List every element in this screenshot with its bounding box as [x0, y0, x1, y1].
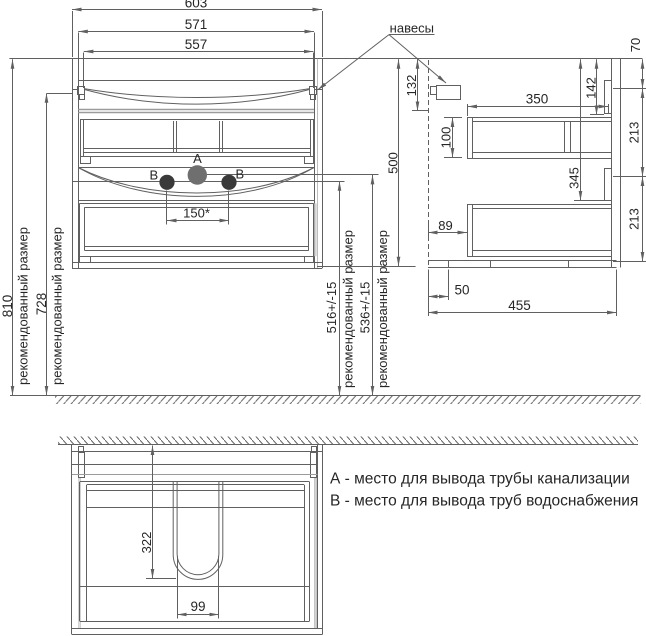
svg-text:571: 571	[185, 17, 208, 32]
svg-text:557: 557	[185, 37, 208, 52]
svg-text:А - место для вывода трубы кан: А - место для вывода трубы канализации	[330, 471, 630, 488]
svg-text:рекомендованный размер: рекомендованный размер	[375, 230, 390, 388]
svg-text:В - место для вывода труб водо: В - место для вывода труб водоснабжения	[330, 492, 638, 509]
svg-text:89: 89	[438, 218, 452, 233]
svg-text:A: A	[193, 151, 202, 166]
svg-text:100: 100	[439, 127, 454, 149]
svg-text:рекомендованный размер: рекомендованный размер	[49, 227, 64, 385]
svg-text:99: 99	[190, 599, 205, 614]
svg-text:536+/-15: 536+/-15	[357, 282, 372, 334]
svg-text:728: 728	[34, 293, 49, 316]
svg-text:навесы: навесы	[390, 21, 434, 36]
svg-text:603: 603	[185, 0, 208, 11]
svg-text:142: 142	[584, 77, 599, 99]
svg-text:516+/-15: 516+/-15	[324, 282, 339, 334]
svg-text:213: 213	[627, 122, 642, 144]
svg-text:213: 213	[627, 208, 642, 230]
svg-text:345: 345	[567, 167, 582, 189]
svg-text:B: B	[149, 168, 158, 183]
svg-text:132: 132	[404, 75, 419, 97]
svg-text:рекомендованный размер: рекомендованный размер	[340, 230, 355, 388]
svg-text:рекомендованный размер: рекомендованный размер	[15, 227, 30, 385]
svg-text:500: 500	[386, 152, 401, 174]
svg-text:B: B	[235, 167, 244, 182]
svg-text:810: 810	[0, 295, 15, 318]
svg-text:322: 322	[139, 532, 154, 554]
svg-text:50: 50	[454, 283, 469, 298]
svg-text:70: 70	[628, 38, 643, 52]
svg-text:455: 455	[508, 298, 531, 313]
svg-text:150*: 150*	[183, 206, 210, 221]
svg-text:350: 350	[526, 92, 549, 107]
